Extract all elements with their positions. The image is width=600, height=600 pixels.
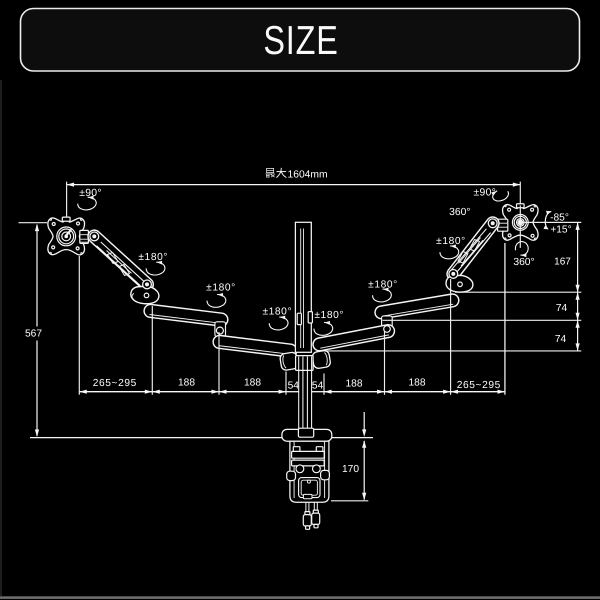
svg-text:167: 167	[554, 256, 571, 267]
svg-text:±180°: ±180°	[314, 310, 344, 321]
svg-text:188: 188	[178, 378, 195, 389]
svg-text:54: 54	[312, 381, 324, 392]
svg-text:±180°: ±180°	[206, 283, 236, 294]
svg-text:74: 74	[555, 334, 567, 345]
svg-text:188: 188	[244, 378, 261, 389]
svg-text:188: 188	[346, 379, 363, 390]
svg-text:170: 170	[342, 464, 359, 475]
svg-text:360°: 360°	[449, 207, 470, 218]
svg-text:360°: 360°	[513, 257, 534, 268]
svg-text:+15°: +15°	[550, 224, 571, 235]
svg-text:-85°: -85°	[550, 212, 569, 223]
svg-text:SIZE: SIZE	[263, 17, 338, 63]
svg-text:1604mm: 1604mm	[288, 169, 328, 180]
svg-text:74: 74	[556, 303, 568, 314]
svg-text:265~295: 265~295	[93, 378, 137, 389]
svg-text:±180°: ±180°	[436, 236, 466, 247]
svg-text:±90°: ±90°	[79, 188, 102, 199]
svg-text:567: 567	[25, 328, 42, 339]
svg-text:188: 188	[409, 378, 426, 389]
svg-text:265~295: 265~295	[457, 380, 501, 391]
svg-text:54: 54	[288, 381, 300, 392]
svg-text:±180°: ±180°	[138, 252, 168, 263]
svg-text:±90°: ±90°	[473, 187, 496, 198]
svg-text:±180°: ±180°	[262, 307, 292, 318]
